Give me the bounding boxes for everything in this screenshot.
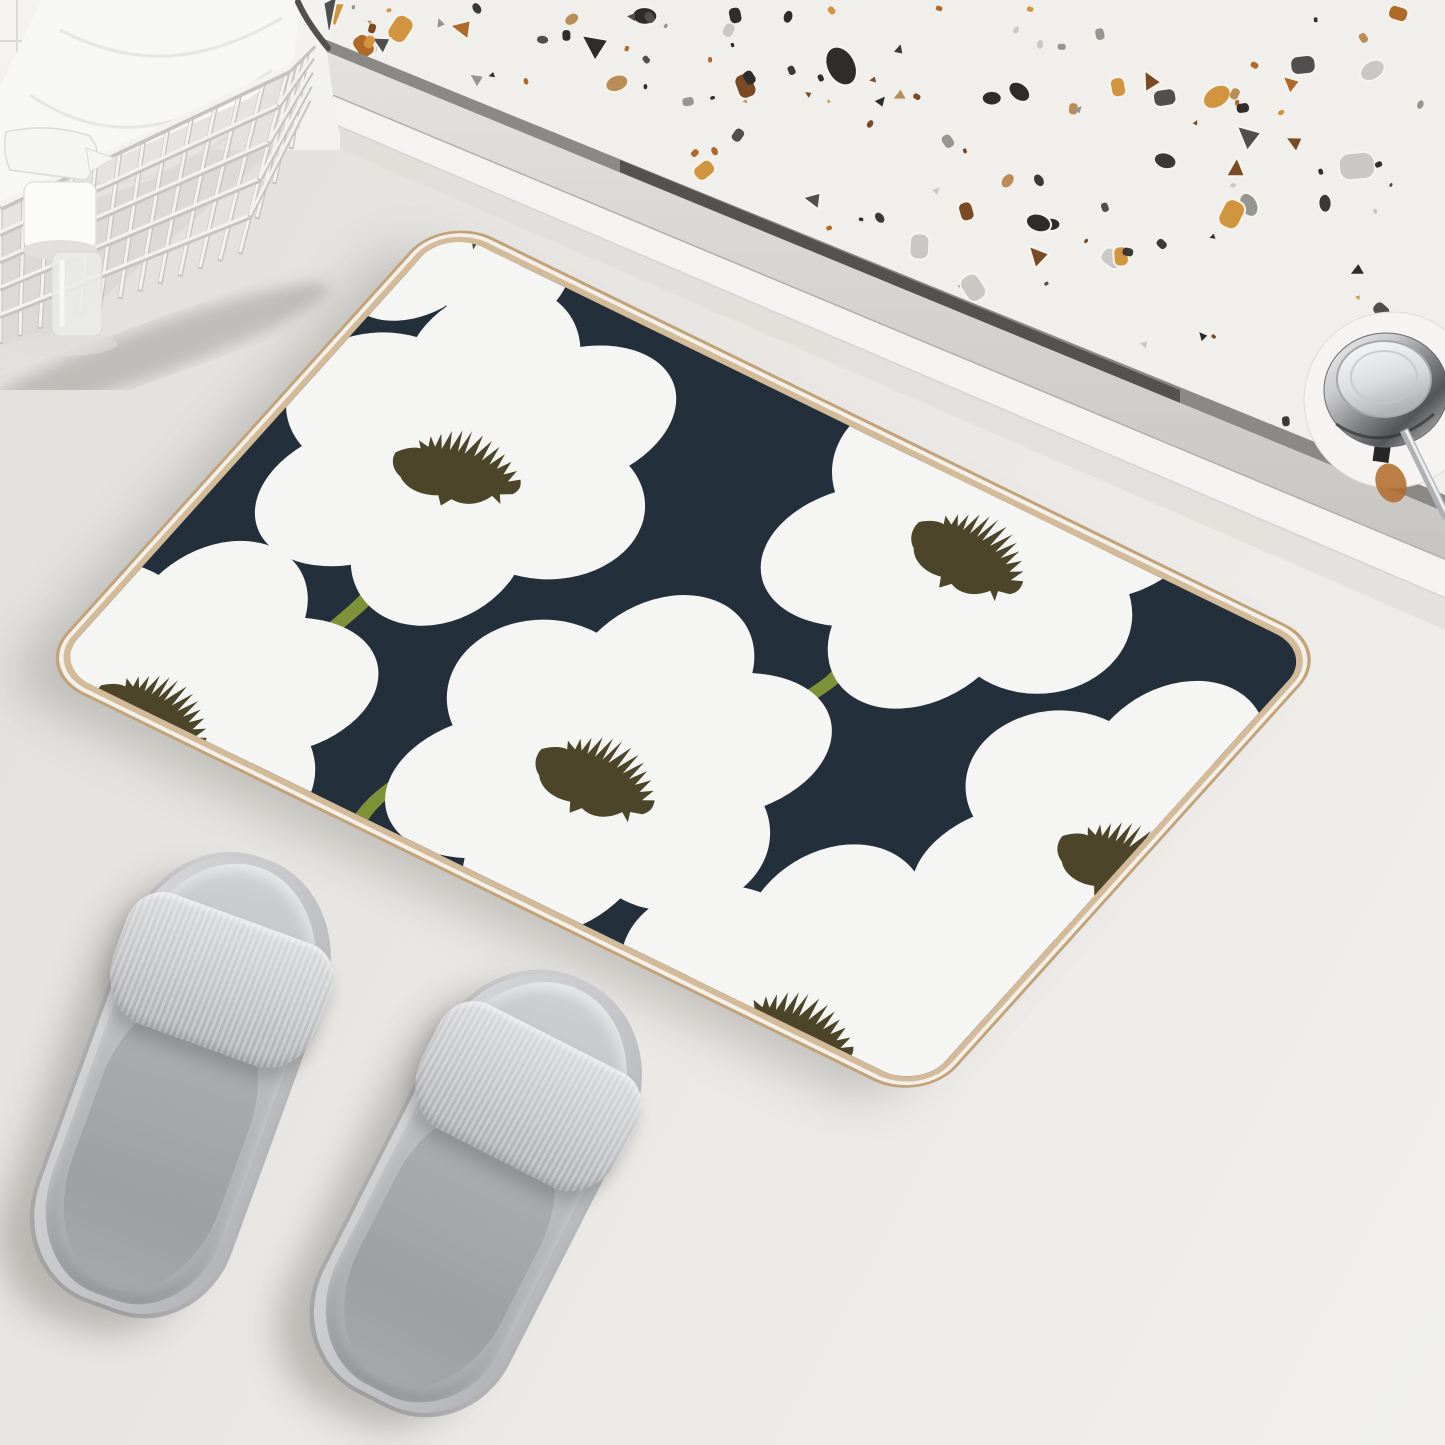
terrazzo-chip (1109, 76, 1127, 98)
terrazzo-chip (562, 30, 570, 41)
bathroom-scene (0, 0, 1445, 1445)
terrazzo-chip (1152, 87, 1177, 107)
terrazzo-chip (1058, 44, 1066, 50)
terrazzo-chip (909, 233, 930, 260)
terrazzo-chip (708, 57, 712, 62)
terrazzo-chip (983, 92, 1001, 105)
terrazzo-chip (1314, 17, 1318, 22)
pump-bottle-cap (24, 182, 96, 250)
terrazzo-chip (1373, 209, 1377, 214)
terrazzo-chip (1338, 151, 1376, 181)
wire-basket (0, 0, 380, 390)
terrazzo-chip (1318, 193, 1332, 213)
terrazzo-chip (1289, 54, 1316, 75)
terrazzo-chip (1282, 416, 1290, 426)
